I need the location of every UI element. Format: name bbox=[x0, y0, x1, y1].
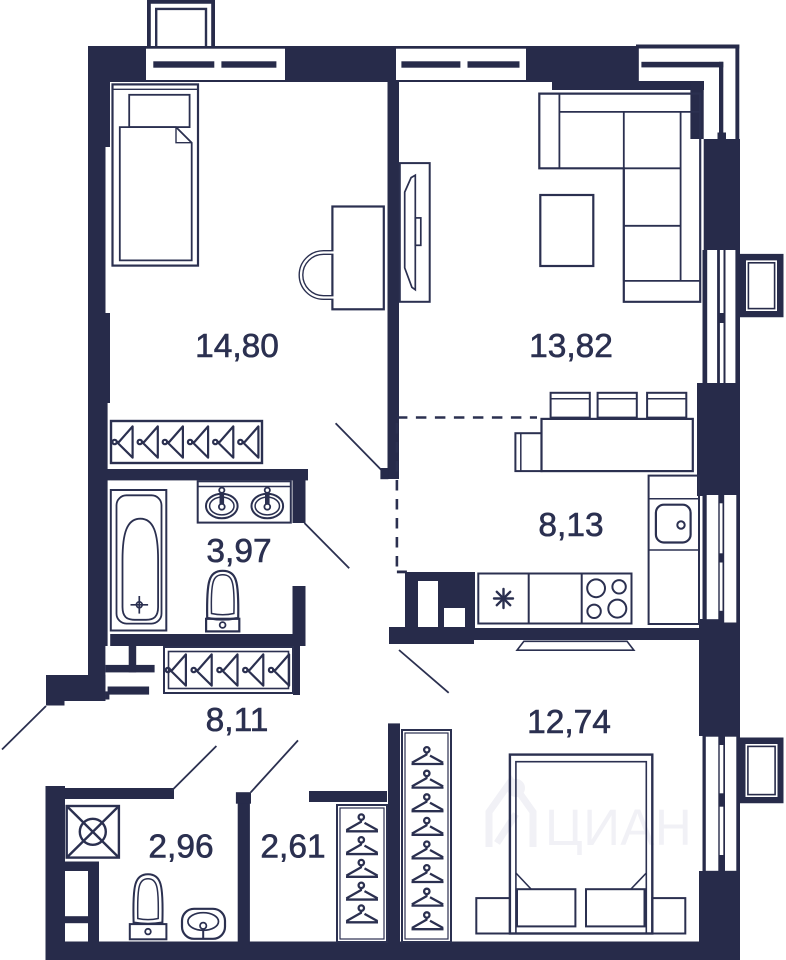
svg-text:2,96: 2,96 bbox=[148, 829, 213, 866]
svg-text:13,82: 13,82 bbox=[529, 328, 613, 365]
svg-text:ЦИАН: ЦИАН bbox=[545, 799, 692, 856]
svg-text:3,97: 3,97 bbox=[206, 533, 271, 570]
svg-text:14,80: 14,80 bbox=[195, 328, 279, 365]
svg-text:12,74: 12,74 bbox=[527, 704, 611, 741]
svg-text:8,13: 8,13 bbox=[538, 507, 603, 544]
svg-text:2,61: 2,61 bbox=[260, 829, 325, 866]
svg-text:8,11: 8,11 bbox=[206, 702, 269, 739]
